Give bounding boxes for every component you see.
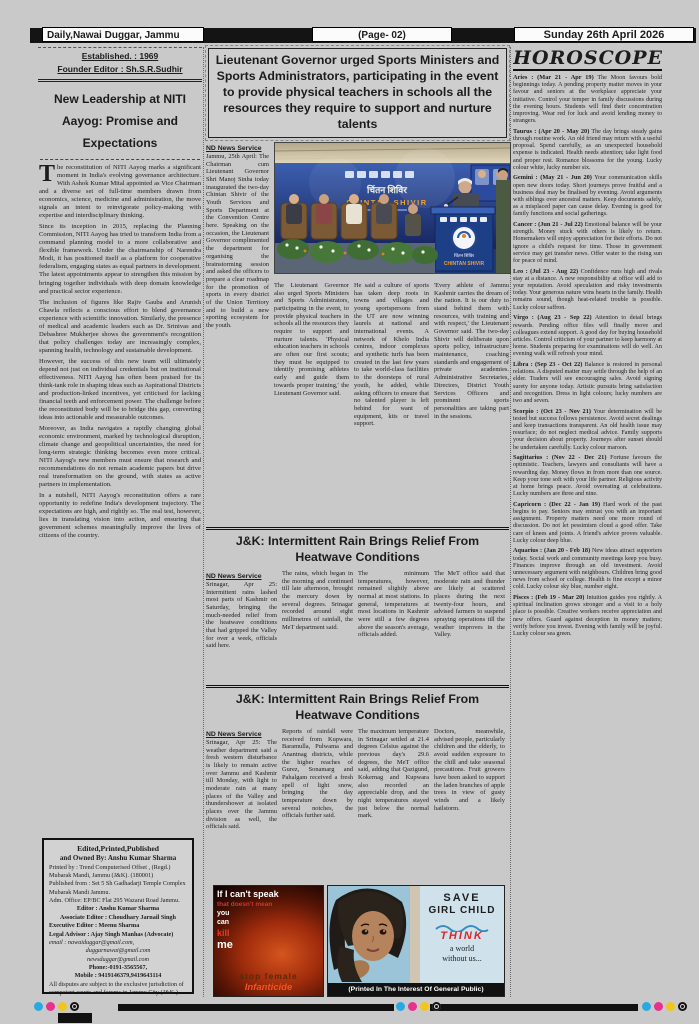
established-line: Established. : 1969 [38, 50, 202, 63]
registration-dots-right [642, 1002, 687, 1011]
horoscope-entry: Gemini : (May 21 - Jun 20) Your communic… [513, 174, 662, 218]
ad-footer: (Printed In The Interest Of General Publ… [328, 983, 504, 996]
article-column: Doctors, meanwhile, advised people, part… [434, 728, 505, 878]
ad-text: me [217, 939, 233, 951]
editorial-paragraph: Since its inception in 2015, replacing t… [39, 223, 201, 295]
editorial-paragraph: Moreover, as India navigates a rapidly c… [39, 425, 201, 489]
article-column: The MeT office said that moderate rain a… [434, 570, 505, 680]
registration-dots-center [396, 1002, 441, 1011]
drop-cap: T [39, 165, 55, 185]
public-interest-ads: If I can't speak that doesn't mean you c… [213, 885, 509, 997]
corner-print-block [58, 1013, 92, 1023]
article-text: Jammu, 25th April: The Chairman cum Lieu… [206, 153, 269, 330]
ad-text: can [217, 919, 229, 926]
standing-man [496, 168, 510, 273]
editorial-paragraph: The inclusion of figures like Rajiv Gaub… [39, 299, 201, 355]
article-column: The minimum temperatures, however, remai… [358, 570, 429, 680]
rain-article-2: J&K: Intermittent Rain Brings Relief Fro… [206, 685, 509, 878]
article-column: He said a culture of sports has taken de… [354, 282, 429, 522]
article-column: ND News Service Jammu, 25th April: The C… [206, 142, 269, 518]
imprint-disclaimer: All disputes are subject to the exclusiv… [49, 981, 187, 998]
ad-text: stop female [214, 971, 323, 981]
imprint-line: Associate Editor : Choudhary Jarnail Sin… [49, 914, 187, 922]
registration-dots-left [34, 1002, 79, 1011]
issue-date: Sunday 26th April 2026 [514, 27, 694, 42]
ad-text: GIRL CHILD [420, 905, 504, 916]
podium-english-text: CHINTAN SHIVIR [444, 261, 485, 267]
main-article-columns: The Lieutenant Governor also urged Sport… [274, 282, 509, 522]
main-article: ND News Service Jammu, 25th April: The C… [206, 142, 509, 522]
rain-article-1: J&K: Intermittent Rain Brings Relief Fro… [206, 527, 509, 680]
editorial-title: New Leadership at NITI Aayog: Promise an… [40, 88, 200, 161]
save-girl-child-ad: SAVE GIRL CHILD THINK a world without us… [327, 885, 505, 997]
stop-female-infanticide-ad: If I can't speak that doesn't mean you c… [213, 885, 324, 997]
horoscope-entry: Taurus : (Apr 20 - May 20) The day bring… [513, 128, 662, 172]
banner-hindi-text: चिंतन शिविर [366, 184, 407, 195]
ad-text: a world [420, 944, 504, 953]
horoscope-entry: Pisces : (Feb 19 - Mar 20) Intuition gui… [513, 594, 662, 638]
imprint-line: Adm. Office: EP/BC Flat 295 Wazarat Road… [49, 897, 187, 905]
imprint-line: Edited,Printed,Published [49, 844, 187, 854]
horoscope-entry: Aquarius : (Jan 20 - Feb 18) New ideas a… [513, 547, 662, 591]
horoscope-entry: Sagittarius : (Nov 22 - Dec 21) Fortune … [513, 454, 662, 498]
imprint-email: duggarnawai@gmail.com [49, 947, 187, 955]
imprint-phone: Phone:-0191-3565567, [49, 964, 187, 972]
horoscope-entry: Scorpio : (Oct 23 - Nov 21) Your determi… [513, 408, 662, 452]
column-divider [203, 47, 204, 997]
ad-text: If I can't speak [217, 889, 279, 899]
main-headline: Lieutenant Governor urged Sports Ministe… [208, 48, 507, 138]
article-column: ND News Service Srinagar, Apr 25: Interm… [206, 570, 277, 680]
article-column: 'Every athlete of Jammu Kashmir carries … [434, 282, 509, 522]
print-bar [118, 1004, 394, 1011]
byline: ND News Service [206, 145, 269, 152]
imprint-box: Edited,Printed,Published and Owned By: A… [42, 838, 194, 994]
editorial-paragraph: The reconstitution of NITI Aayog marks a… [39, 164, 201, 220]
ad-text: that doesn't mean [217, 901, 272, 908]
girl-illustration [328, 886, 420, 983]
ad-text: you [217, 910, 229, 917]
imprint-mobile: Mobile : 9419146379,9419643114 [49, 972, 187, 980]
center-column: Lieutenant Governor urged Sports Ministe… [206, 47, 509, 997]
imprint-line: Published from : Set 5 Sh Gadhadarji Tem… [49, 880, 187, 897]
imprint-email: email : nawaiduggar@gmail.com, [49, 939, 187, 947]
article-column: The Lieutenant Governor also urged Sport… [274, 282, 349, 522]
imprint-line: Editor : Anshu Kumar Sharma [49, 905, 187, 913]
horoscope-entry: Cancer : (Jun 21 - Jul 22) Emotional bal… [513, 221, 662, 265]
editorial-paragraph: However, the success of this new team wi… [39, 358, 201, 422]
imprint-line: and Owned By: Anshu Kumar Sharma [49, 854, 187, 863]
ad-text: kill [217, 928, 230, 938]
ad-text: Infanticide [214, 982, 323, 993]
horoscope-title: HOROSCOPE [513, 47, 662, 71]
byline: ND News Service [206, 731, 277, 738]
event-photo: चिंतन शिविर CHINTAN SHIVIR [274, 142, 511, 274]
article-column: The maximum temperature in Srinagar sett… [358, 728, 429, 878]
rain-headline: J&K: Intermittent Rain Brings Relief Fro… [212, 692, 503, 724]
ad-text: SAVE [420, 892, 504, 904]
imprint-line: Printed by : Trend Computerised Offset ,… [49, 864, 187, 881]
print-bar [430, 1004, 638, 1011]
horoscope-entry: Leo : (Jul 23 - Aug 22) Confidence runs … [513, 268, 662, 312]
article-column: ND News Service Srinagar, Apr 25: The we… [206, 728, 277, 878]
horoscope-entry: Virgo : (Aug 23 - Sep 22) Attention to d… [513, 314, 662, 358]
editorial-paragraph: In a nutshell, NITI Aayog's reconstituti… [39, 492, 201, 540]
horoscope-entry: Libra : (Sep 23 - Oct 22) Balance is res… [513, 361, 662, 405]
founder-editor-line: Founder Editor : Sh.S.R.Sudhir [38, 63, 202, 76]
imprint-email: newsduggar@gmail.com [49, 956, 187, 964]
ad-text: without us... [420, 954, 504, 963]
rain-headline: J&K: Intermittent Rain Brings Relief Fro… [212, 534, 503, 566]
podium-hindi-text: चिंतन शिविर [454, 252, 474, 258]
newspaper-page: Daily,Nawai Duggar, Jammu (Page- 02) Sun… [0, 0, 699, 1024]
horoscope-column: HOROSCOPE Aries : (Mar 21 - Apr 19) The … [513, 47, 662, 999]
imprint-line: Executive Editor : Meenu Sharma [49, 922, 187, 930]
imprint-line: Legal Advisor : Ajay Singh Manhas (Advoc… [49, 931, 187, 939]
ad-text: THINK [420, 930, 504, 942]
horoscope-entry: Capricorn : (Dec 22 - Jan 19) Hard work … [513, 501, 662, 545]
editorial-column: Established. : 1969 Founder Editor : Sh.… [38, 47, 202, 835]
article-column: The rains, which began in the morning an… [282, 570, 353, 680]
masthead: Established. : 1969 Founder Editor : Sh.… [38, 47, 202, 82]
article-column: Reports of rainfall were received from K… [282, 728, 353, 878]
paper-name: Daily,Nawai Duggar, Jammu [42, 27, 204, 42]
byline: ND News Service [206, 573, 277, 580]
horoscope-entry: Aries : (Mar 21 - Apr 19) The Moon favou… [513, 74, 662, 125]
page-label: (Page- 02) [312, 27, 452, 42]
